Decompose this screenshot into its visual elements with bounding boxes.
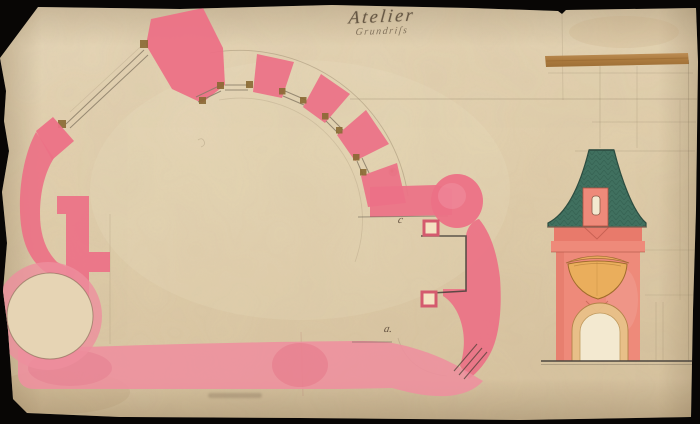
knob-wash-highlight (438, 183, 466, 209)
wall-shade-left (556, 250, 564, 361)
jamb-pier-upper (424, 221, 438, 235)
drawing-canvas (0, 0, 700, 424)
scanned-drawing-sheet: Atelier Grundriſs c a. (0, 0, 700, 424)
rampart-pigment-blotch (272, 343, 328, 387)
round-tower-plan (7, 273, 93, 359)
corner-stain (569, 16, 679, 48)
cornice-ledge (551, 241, 645, 252)
dormer-window (592, 196, 600, 215)
gate-opening (580, 313, 620, 361)
jamb-pier-lower (422, 292, 436, 306)
